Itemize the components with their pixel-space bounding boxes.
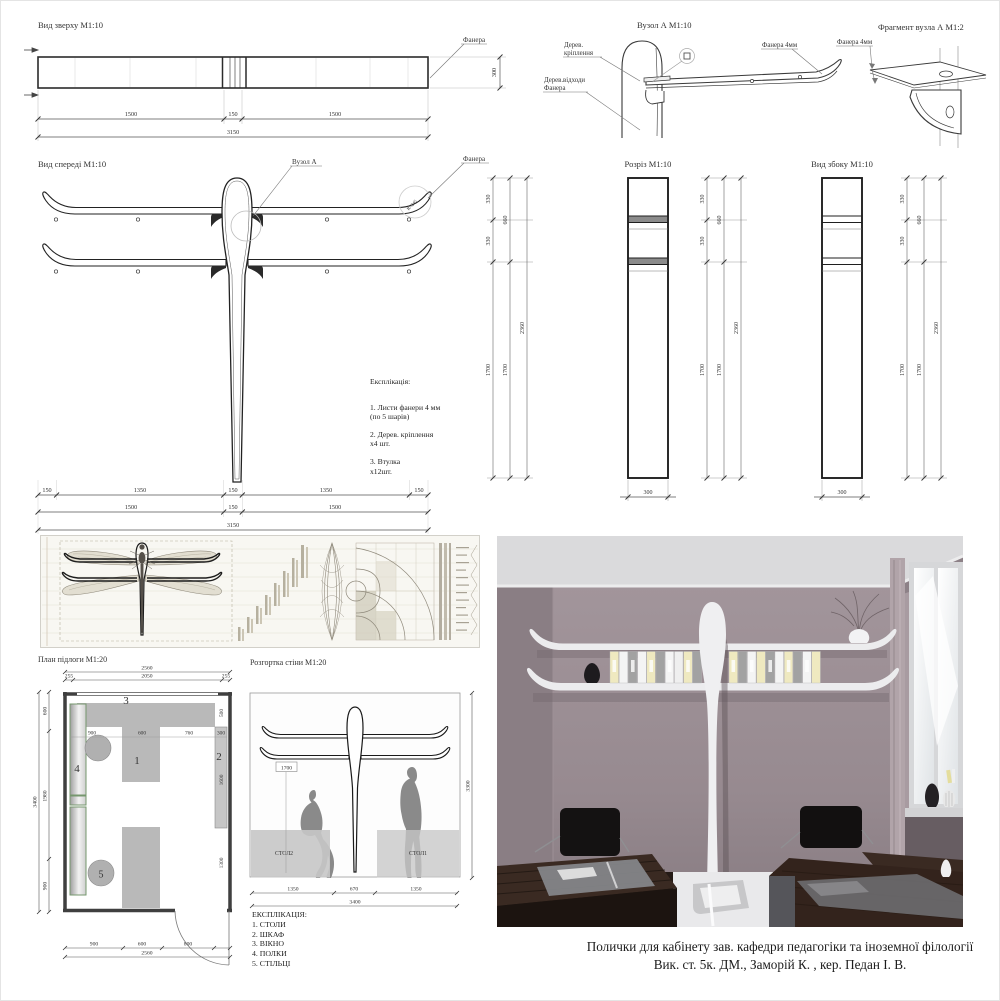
svg-text:300: 300 bbox=[644, 490, 653, 496]
floor-plan: План підлоги М1:20 2560 255 2050 255 bbox=[25, 650, 255, 980]
svg-text:1700: 1700 bbox=[917, 364, 923, 376]
white-pedestal bbox=[673, 872, 773, 927]
node-a-detail: Вузол А М1:10 Дерев. кріплення Дерев.від… bbox=[540, 8, 1000, 153]
svg-text:Фанера: Фанера bbox=[463, 36, 486, 44]
column-width-dims: 300 300 bbox=[620, 480, 870, 501]
svg-text:4: 4 bbox=[74, 763, 80, 775]
windowsill bbox=[903, 808, 963, 817]
svg-text:500: 500 bbox=[219, 709, 225, 717]
svg-text:760: 760 bbox=[185, 731, 193, 737]
book-white bbox=[952, 769, 955, 783]
svg-text:1500: 1500 bbox=[329, 111, 341, 118]
node-a-title: Вузол А М1:10 bbox=[637, 20, 692, 30]
svg-text:Фанера: Фанера bbox=[544, 85, 565, 92]
front-view-dims: 150 1350 150 1350 150 1500 150 1500 3150 bbox=[36, 480, 431, 534]
svg-text:300: 300 bbox=[217, 731, 225, 737]
fragment-title: Фрагмент вузла А М1:2 bbox=[878, 22, 964, 32]
top-view-bar bbox=[24, 48, 428, 97]
svg-text:1700: 1700 bbox=[900, 364, 906, 376]
vertical-dim-chains: 330 330 1700 660 1700 2360 bbox=[486, 176, 947, 481]
concept-sketch-strip bbox=[40, 535, 480, 648]
section-title: Розріз М1:10 bbox=[625, 159, 672, 169]
svg-text:3400: 3400 bbox=[349, 900, 360, 906]
svg-text:900: 900 bbox=[90, 942, 99, 948]
top-view-drawing: Вид зверху М1:10 Фанера bbox=[0, 0, 520, 150]
node-a-drawing bbox=[622, 41, 841, 138]
parts-explication-title: Експлікація: bbox=[370, 377, 465, 387]
svg-text:900: 900 bbox=[43, 882, 49, 891]
svg-text:1300: 1300 bbox=[219, 857, 225, 868]
section-side-views: Розріз М1:10 Вид збоку М1:10 bbox=[480, 150, 1000, 550]
plan-top-dims: 2560 255 2050 255 bbox=[63, 666, 232, 683]
table1-label: СТОЛ1 bbox=[409, 851, 427, 857]
svg-text:1350: 1350 bbox=[320, 487, 332, 494]
plan-cabinet-upper bbox=[70, 704, 86, 795]
front-view-drawing: Вид спереді М1:10 bbox=[0, 150, 520, 540]
curtain bbox=[890, 558, 905, 878]
svg-text:Дерев.відходи: Дерев.відходи bbox=[544, 77, 585, 84]
svg-text:330: 330 bbox=[700, 237, 706, 246]
plan-table-1 bbox=[122, 703, 160, 782]
svg-text:1700: 1700 bbox=[503, 364, 509, 376]
svg-text:660: 660 bbox=[717, 216, 723, 225]
svg-text:2360: 2360 bbox=[520, 322, 526, 334]
caption-line1: Полички для кабінету зав. кафедри педаго… bbox=[560, 938, 1000, 956]
plan-cabinet-lower bbox=[70, 807, 86, 895]
svg-text:2: 2 bbox=[216, 751, 222, 763]
svg-text:1700: 1700 bbox=[486, 364, 492, 376]
svg-text:300: 300 bbox=[838, 490, 847, 496]
svg-text:150: 150 bbox=[228, 111, 237, 118]
svg-text:кріплення: кріплення bbox=[564, 50, 593, 57]
svg-text:150: 150 bbox=[42, 487, 51, 494]
plan-left-dims: 3400 600 1980 900 bbox=[33, 690, 52, 914]
side-view-title: Вид збоку М1:10 bbox=[811, 159, 873, 169]
svg-text:670: 670 bbox=[350, 887, 359, 893]
svg-text:255: 255 bbox=[65, 674, 74, 680]
svg-text:800: 800 bbox=[184, 942, 193, 948]
svg-text:Фанера 4мм: Фанера 4мм bbox=[762, 42, 798, 49]
svg-text:3300: 3300 bbox=[466, 780, 472, 791]
svg-text:330: 330 bbox=[486, 195, 492, 204]
node-a-labels: Дерев. кріплення Дерев.відходи Фанера Фа… bbox=[543, 42, 822, 130]
svg-text:1600: 1600 bbox=[219, 774, 225, 785]
svg-text:Фанера 4мм: Фанера 4мм bbox=[837, 39, 873, 46]
room-legend: ЕКСПЛІКАЦІЯ: 1. СТОЛИ 2. ШКАФ 3. ВІКНО 4… bbox=[252, 910, 307, 969]
drawing-sheet: Вид зверху М1:10 Фанера bbox=[0, 0, 1000, 1001]
svg-text:3400: 3400 bbox=[33, 796, 39, 807]
svg-text:2360: 2360 bbox=[934, 322, 940, 334]
svg-text:Дерев.: Дерев. bbox=[564, 42, 583, 49]
sheet-caption: Полички для кабінету зав. кафедри педаго… bbox=[560, 938, 1000, 973]
svg-text:Вузол А: Вузол А bbox=[292, 158, 317, 166]
svg-text:1700: 1700 bbox=[700, 364, 706, 376]
elevation-bottom-dims: 1350 670 1350 3400 bbox=[250, 887, 459, 909]
caption-line2: Вик. ст. 5к. ДМ., Заморій К. , кер. Педа… bbox=[560, 956, 1000, 974]
svg-text:1500: 1500 bbox=[329, 504, 341, 511]
svg-text:600: 600 bbox=[43, 707, 49, 716]
shelf-body bbox=[222, 178, 252, 482]
plan-window bbox=[77, 692, 218, 696]
fragment-labels: Фанера 4мм bbox=[836, 39, 878, 84]
plan-table-1b bbox=[122, 827, 160, 908]
plan-stool-a bbox=[85, 735, 111, 761]
svg-text:660: 660 bbox=[917, 216, 923, 225]
fragment-drawing bbox=[870, 46, 986, 148]
svg-text:330: 330 bbox=[700, 195, 706, 204]
front-view-labels: Вузол А Фанера bbox=[253, 155, 489, 216]
svg-text:1700: 1700 bbox=[717, 364, 723, 376]
svg-text:1350: 1350 bbox=[134, 487, 146, 494]
elevation-right-dim: 3300 bbox=[466, 691, 475, 880]
svg-text:3: 3 bbox=[123, 695, 129, 707]
plan-bottom-dims: 900 600 800 2560 bbox=[63, 942, 232, 960]
svg-text:330: 330 bbox=[900, 195, 906, 204]
svg-text:330: 330 bbox=[900, 237, 906, 246]
svg-text:1980: 1980 bbox=[43, 790, 49, 801]
svg-text:255: 255 bbox=[222, 674, 231, 680]
floor-plan-title: План підлоги М1:20 bbox=[38, 655, 107, 664]
svg-text:150: 150 bbox=[228, 487, 237, 494]
svg-text:150: 150 bbox=[414, 487, 423, 494]
svg-text:2360: 2360 bbox=[734, 322, 740, 334]
svg-text:150: 150 bbox=[228, 504, 237, 511]
svg-text:900: 900 bbox=[88, 731, 96, 737]
table2-label: СТОЛ2 bbox=[275, 851, 293, 857]
wall-elevation-title: Розгортка стіни М1:20 bbox=[250, 658, 326, 667]
svg-text:2050: 2050 bbox=[141, 674, 152, 680]
svg-text:1500: 1500 bbox=[125, 504, 137, 511]
svg-text:3150: 3150 bbox=[227, 522, 239, 529]
svg-text:1500: 1500 bbox=[125, 111, 137, 118]
svg-text:600: 600 bbox=[138, 731, 146, 737]
section-column bbox=[628, 178, 668, 478]
parts-explication: Експлікація: 1. Листи фанери 4 мм (по 5 … bbox=[370, 377, 465, 476]
side-view-column bbox=[822, 178, 862, 478]
svg-text:2560: 2560 bbox=[141, 666, 152, 672]
svg-text:1350: 1350 bbox=[410, 887, 421, 893]
left-desk bbox=[497, 854, 677, 927]
svg-text:300: 300 bbox=[491, 68, 498, 77]
datum-arrows bbox=[24, 48, 38, 97]
front-view-title: Вид спереді М1:10 bbox=[38, 159, 106, 169]
svg-text:1350: 1350 bbox=[287, 887, 298, 893]
svg-text:660: 660 bbox=[503, 216, 509, 225]
svg-text:600: 600 bbox=[138, 942, 147, 948]
svg-text:2560: 2560 bbox=[141, 951, 152, 957]
svg-text:1: 1 bbox=[134, 755, 140, 767]
svg-text:5: 5 bbox=[99, 870, 104, 881]
top-view-title: Вид зверху М1:10 bbox=[38, 20, 103, 30]
svg-text:1700: 1700 bbox=[281, 766, 292, 772]
render-3d bbox=[497, 536, 963, 927]
svg-text:330: 330 bbox=[486, 237, 492, 246]
room-legend-title: ЕКСПЛІКАЦІЯ: bbox=[252, 910, 307, 920]
svg-text:3150: 3150 bbox=[227, 129, 239, 136]
plan-cabinet-mid bbox=[70, 796, 86, 805]
